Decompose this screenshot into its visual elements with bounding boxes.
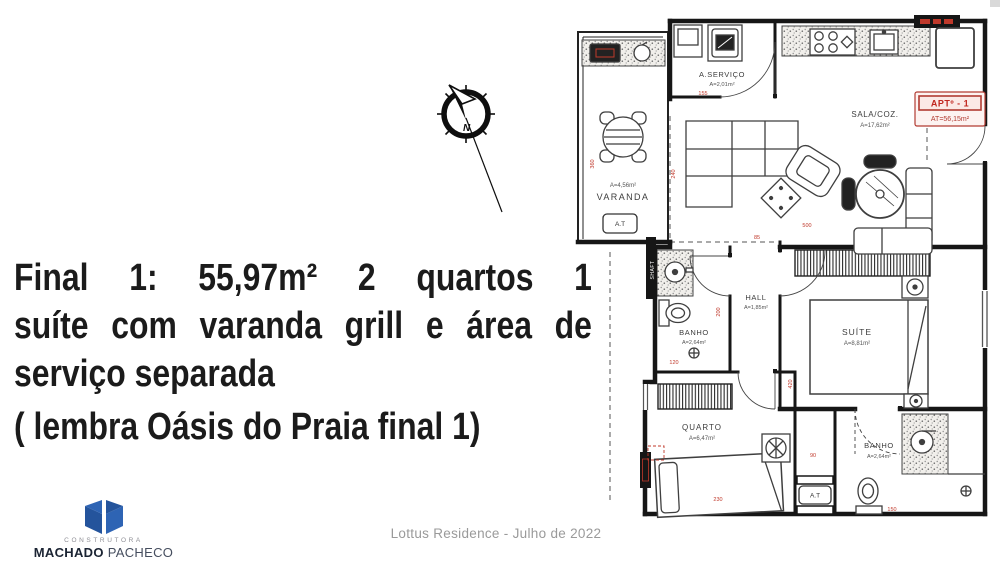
room-label-varanda: VARANDA: [597, 192, 650, 202]
fridge-icon: [936, 28, 974, 68]
banho1-drain-icon: [689, 348, 699, 358]
room-label-quarto: QUARTO: [682, 423, 722, 432]
shaft-label: SHAFT: [650, 261, 656, 280]
stove-icon: [810, 29, 855, 55]
kitchen-sink-icon: [870, 30, 898, 54]
headline: Final 1: 55,97m² 2 quartos 1 suíte com v…: [14, 254, 592, 451]
builder-logo: CONSTRUTORA MACHADOPACHECO: [6, 498, 201, 560]
dimension-label: 420: [788, 379, 794, 388]
headline-line-2: suíte com varanda grill e área de: [14, 302, 592, 350]
room-area-banho1: A=2,64m²: [682, 340, 706, 346]
room-label-hall: HALL: [745, 293, 766, 302]
room-label-banho2: BANHO: [864, 441, 894, 450]
suite-vent-icon: [904, 394, 928, 408]
at-label-corridor: A.T: [810, 493, 820, 500]
at-label-varanda: A.T: [615, 221, 625, 228]
room-label-sala: SALA/COZ.: [851, 110, 898, 119]
room-area-banho2: A=2,64m²: [867, 454, 891, 460]
banho1-toilet-icon: [659, 300, 690, 326]
quarto-wardrobe: [658, 384, 732, 409]
logo-tagline: CONSTRUTORA: [6, 537, 201, 544]
varanda-sink-icon: [634, 45, 650, 61]
logo-m-icon: [81, 498, 127, 534]
suite-nightstand-icon: [902, 276, 928, 298]
washer-icon: [708, 25, 742, 61]
kitchen-counter: [782, 26, 930, 56]
logo-name-regular: PACHECO: [108, 545, 173, 560]
room-label-banho1: BANHO: [679, 328, 709, 337]
room-area-sala: A=17,62m²: [860, 123, 890, 129]
banho2-shower-icon: [948, 474, 985, 496]
logo-name-bold: MACHADO: [34, 545, 104, 560]
dimension-label: 500: [802, 223, 811, 229]
room-area-quarto: A=6,47m²: [689, 436, 715, 442]
dimension-label: 200: [716, 307, 722, 316]
headline-line-3: serviço separada: [14, 350, 592, 398]
presentation-slide: Final 1: 55,97m² 2 quartos 1 suíte com v…: [0, 0, 1000, 561]
apartment-badge: APTº - 1 AT=56,15m²: [915, 92, 985, 126]
dimension-label: 150: [887, 507, 896, 513]
headline-line-1: Final 1: 55,97m² 2 quartos 1: [14, 254, 592, 302]
room-label-servico: A.SERVIÇO: [699, 70, 745, 79]
apartment-badge-area: AT=56,15m²: [931, 116, 970, 123]
ottoman-icon: [761, 178, 801, 218]
floorplan: SHAFT: [570, 4, 1000, 556]
dimension-label: 230: [713, 497, 722, 503]
duct-box: [640, 452, 651, 488]
room-area-varanda: A=4,56m²: [610, 183, 636, 189]
compass-north-label: N: [463, 123, 471, 134]
dimension-label: 120: [669, 360, 678, 366]
dimension-label: 155: [698, 91, 707, 97]
dining-set-icon: [842, 155, 932, 254]
dimension-label: 360: [590, 159, 596, 168]
apartment-badge-title: APTº - 1: [931, 99, 969, 109]
north-compass-icon: N: [428, 78, 514, 220]
dimension-label: 240: [671, 169, 677, 178]
grill-icon: [590, 44, 620, 62]
room-area-hall: A=1,85m²: [744, 305, 768, 311]
varanda-table-icon: [600, 112, 646, 162]
dimension-label: 90: [810, 453, 816, 459]
quarto-fan-icon: [762, 434, 790, 462]
logo-name: MACHADOPACHECO: [6, 545, 201, 560]
dimension-label: 85: [754, 235, 760, 241]
room-label-suite: SUÍTE: [842, 327, 872, 337]
footer-caption: Lottus Residence - Julho de 2022: [336, 526, 656, 541]
room-area-servico: A=2,01m²: [709, 82, 734, 88]
headline-note: ( lembra Oásis do Praia final 1): [14, 403, 592, 451]
room-area-suite: A=8,81m²: [844, 341, 870, 347]
banho2-toilet-icon: [856, 478, 882, 514]
suite-bed-icon: [810, 300, 928, 394]
